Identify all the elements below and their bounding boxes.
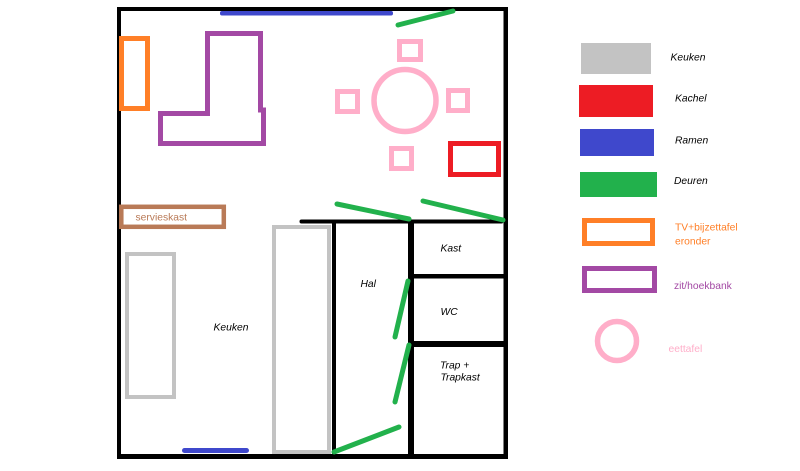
svg-text:zit/hoekbank: zit/hoekbank xyxy=(674,281,733,292)
svg-text:TV+bijzettafel: TV+bijzettafel xyxy=(675,223,738,234)
svg-text:eronder: eronder xyxy=(675,237,711,248)
svg-text:Keuken: Keuken xyxy=(214,323,249,334)
svg-text:Trapkast: Trapkast xyxy=(441,373,481,384)
svg-text:Ramen: Ramen xyxy=(675,136,708,147)
svg-text:Hal: Hal xyxy=(361,279,377,290)
svg-text:WC: WC xyxy=(441,307,459,318)
svg-text:servieskast: servieskast xyxy=(136,213,188,224)
svg-text:Kachel: Kachel xyxy=(675,93,707,104)
svg-text:Deuren: Deuren xyxy=(674,176,708,187)
svg-text:Kast: Kast xyxy=(441,244,463,255)
svg-text:Keuken: Keuken xyxy=(671,52,706,63)
svg-text:eettafel: eettafel xyxy=(669,344,703,355)
svg-text:Trap +: Trap + xyxy=(440,361,469,372)
